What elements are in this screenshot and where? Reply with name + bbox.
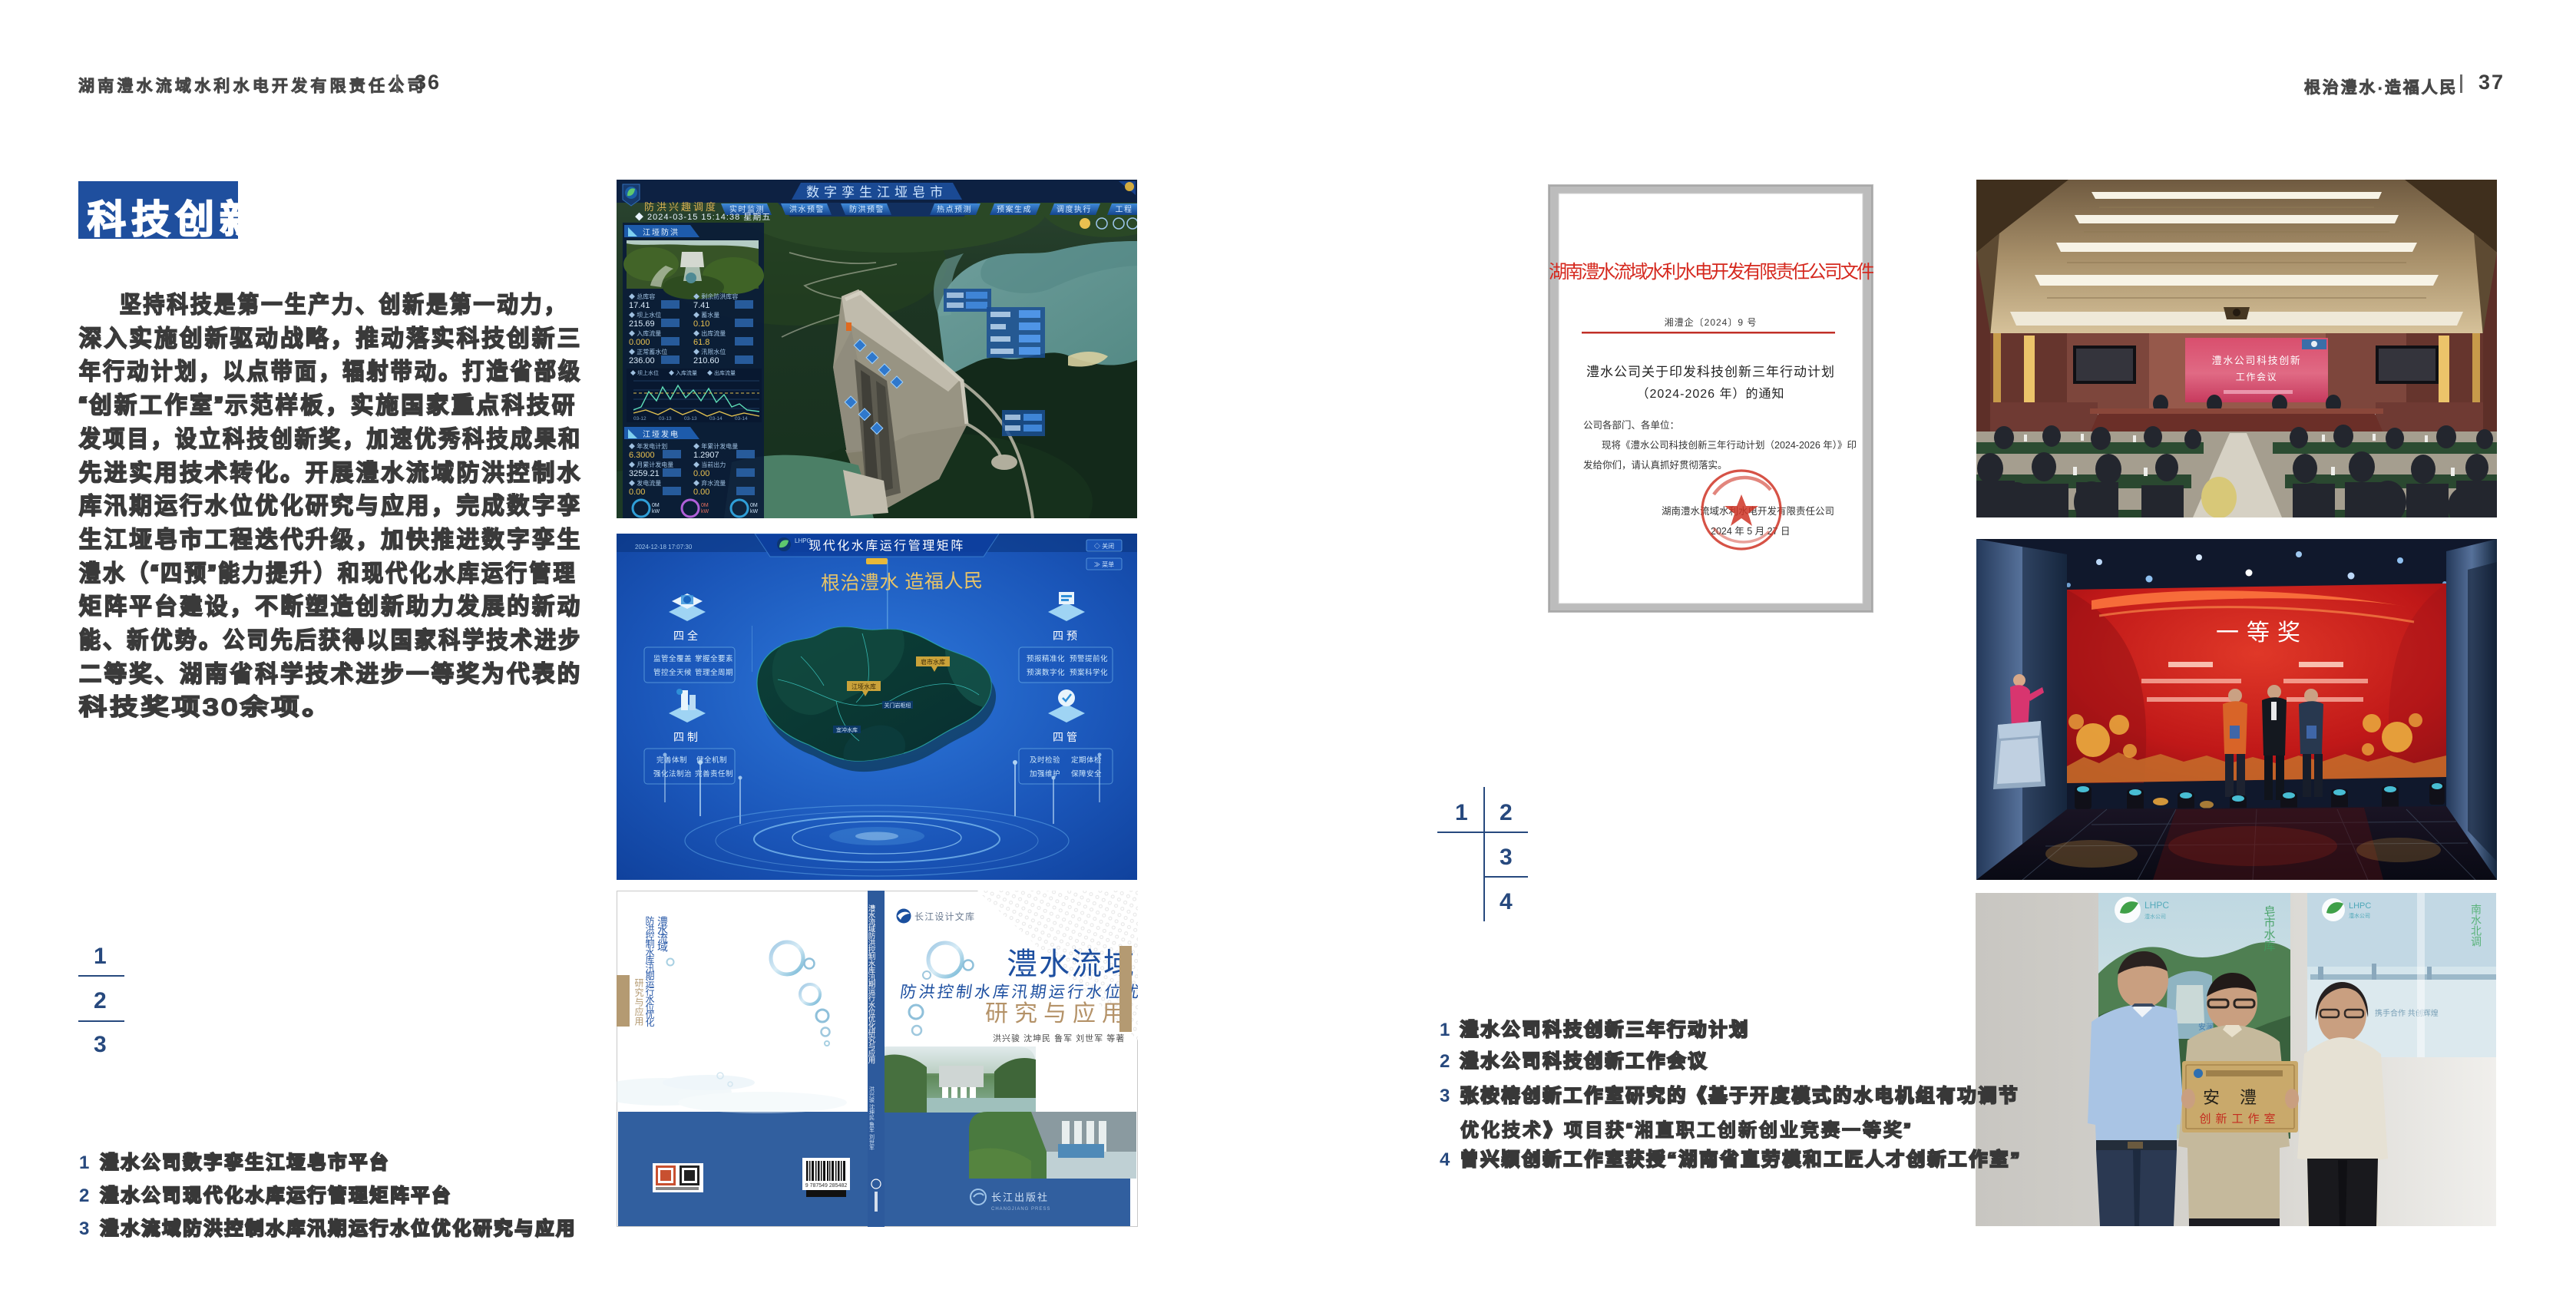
- svg-text:1.2907: 1.2907: [693, 451, 719, 460]
- svg-text:kW: kW: [652, 509, 660, 514]
- svg-text:调度执行: 调度执行: [1057, 204, 1092, 214]
- svg-text:03-13: 03-13: [684, 416, 697, 422]
- svg-text:3259.21: 3259.21: [629, 469, 660, 478]
- svg-text:加强维护: 加强维护: [1030, 769, 1060, 779]
- svg-text:保障安全: 保障安全: [1071, 769, 1102, 779]
- svg-text:工作会议: 工作会议: [2236, 372, 2277, 382]
- svg-text:防洪控制水库汛期运行水位优化: 防洪控制水库汛期运行水位优化: [899, 983, 1138, 1001]
- svg-text:掌握全要素: 掌握全要素: [695, 654, 733, 663]
- svg-text:0.000: 0.000: [629, 338, 650, 347]
- svg-text:◆ 入库流量: ◆ 入库流量: [629, 329, 661, 337]
- svg-text:LHPC: LHPC: [2349, 901, 2371, 911]
- svg-text:◆ 弃水流量: ◆ 弃水流量: [693, 479, 726, 487]
- svg-text:监管全覆盖: 监管全覆盖: [653, 654, 692, 663]
- svg-text:洪兴骏 沈坤民 鲁军 刘世军 等著: 洪兴骏 沈坤民 鲁军 刘世军 等著: [993, 1033, 1125, 1043]
- svg-text:研究与应用: 研究与应用: [985, 1001, 1131, 1027]
- svg-text:215.69: 215.69: [629, 319, 655, 329]
- svg-text:03-14: 03-14: [735, 416, 748, 422]
- svg-text:◆ 发电流量: ◆ 发电流量: [629, 479, 661, 487]
- svg-text:0.00: 0.00: [693, 488, 709, 497]
- svg-text:预案生成: 预案生成: [997, 204, 1032, 214]
- svg-text:◆ 汛限水位: ◆ 汛限水位: [693, 348, 726, 355]
- svg-text:安澧: 安澧: [2203, 1088, 2277, 1107]
- svg-text:强化法制治: 强化法制治: [653, 769, 692, 779]
- svg-text:洪水预警: 洪水预警: [789, 204, 825, 214]
- svg-text:工程: 工程: [1116, 205, 1133, 214]
- svg-text:◆ 年发电计划: ◆ 年发电计划: [629, 442, 667, 450]
- svg-text:长江设计文库: 长江设计文库: [914, 911, 975, 922]
- svg-text:现将《澧水公司科技创新三年行动计划（2024-2026 年）: 现将《澧水公司科技创新三年行动计划（2024-2026 年）》印: [1602, 439, 1857, 451]
- svg-text:四全: 四全: [673, 630, 701, 642]
- svg-text:数字孪生江垭皂市: 数字孪生江垭皂市: [806, 185, 947, 200]
- svg-text:◆ 剩余防洪库容: ◆ 剩余防洪库容: [693, 293, 738, 300]
- svg-text:17.41: 17.41: [629, 301, 650, 310]
- svg-text:0M: 0M: [701, 503, 709, 508]
- svg-text:皂市水库: 皂市水库: [921, 658, 945, 666]
- svg-text:◆ 当前出力: ◆ 当前出力: [693, 461, 726, 468]
- svg-text:预报精准化: 预报精准化: [1027, 654, 1065, 663]
- svg-text:236.00: 236.00: [629, 356, 655, 365]
- svg-text:江垭防洪: 江垭防洪: [643, 227, 680, 237]
- svg-text:2024-12-18 17:07:30: 2024-12-18 17:07:30: [635, 544, 693, 551]
- svg-text:创新工作室: 创新工作室: [2199, 1113, 2280, 1126]
- svg-text:◆ 正常蓄水位: ◆ 正常蓄水位: [629, 348, 667, 355]
- svg-text:研究与应用: 研究与应用: [633, 978, 644, 1027]
- svg-text:LHPC: LHPC: [2144, 900, 2169, 911]
- svg-text:◆ 坝上水位: ◆ 坝上水位: [630, 369, 659, 376]
- svg-text:江垭水库: 江垭水库: [852, 683, 876, 690]
- svg-text:0M: 0M: [750, 503, 758, 508]
- svg-text:南水北调: 南水北调: [2470, 904, 2482, 947]
- svg-text:澧水流域: 澧水流域: [1007, 947, 1136, 981]
- svg-text:江垭发电: 江垭发电: [643, 429, 680, 439]
- svg-text:防洪预警: 防洪预警: [849, 204, 885, 214]
- svg-text:澧水公司: 澧水公司: [2349, 912, 2370, 919]
- svg-text:洪兴骏 沈坤民 鲁军 刘世军: 洪兴骏 沈坤民 鲁军 刘世军: [869, 1086, 875, 1151]
- svg-text:公司各部门、各单位：: 公司各部门、各单位：: [1583, 419, 1679, 431]
- svg-text:9 787549 285482: 9 787549 285482: [805, 1183, 848, 1189]
- svg-text:预演数字化: 预演数字化: [1027, 668, 1065, 677]
- svg-text:◆ 蓄水量: ◆ 蓄水量: [693, 311, 719, 319]
- svg-text:kW: kW: [701, 509, 709, 514]
- svg-text:0M: 0M: [652, 503, 660, 508]
- svg-text:管理全周期: 管理全周期: [695, 668, 733, 677]
- svg-text:kW: kW: [750, 509, 759, 514]
- svg-text:根治澧水 造福人民: 根治澧水 造福人民: [821, 570, 984, 595]
- svg-text:◆ 坝上水位: ◆ 坝上水位: [629, 311, 661, 319]
- svg-text:一等奖: 一等奖: [2216, 620, 2308, 646]
- svg-text:四制: 四制: [673, 731, 701, 743]
- svg-text:发给你们，请认真抓好贯彻落实。: 发给你们，请认真抓好贯彻落实。: [1583, 459, 1728, 471]
- svg-text:澧水公司科技创新: 澧水公司科技创新: [2212, 355, 2302, 366]
- svg-text:6.3000: 6.3000: [629, 451, 655, 460]
- svg-text:关门岩枢纽: 关门岩枢纽: [885, 702, 911, 709]
- svg-text:0.00: 0.00: [693, 469, 709, 478]
- svg-text:宜冲水库: 宜冲水库: [836, 726, 858, 733]
- svg-text:≫ 菜单: ≫ 菜单: [1094, 560, 1114, 568]
- svg-text:携手合作 共创辉煌: 携手合作 共创辉煌: [2375, 1008, 2439, 1018]
- svg-text:03-12: 03-12: [633, 416, 646, 422]
- svg-text:0.00: 0.00: [629, 488, 645, 497]
- svg-text:四预: 四预: [1053, 630, 1080, 642]
- svg-text:现代化水库运行管理矩阵: 现代化水库运行管理矩阵: [809, 539, 965, 553]
- svg-text:防洪兴趣调度: 防洪兴趣调度: [644, 201, 718, 213]
- svg-text:定期体检: 定期体检: [1071, 755, 1102, 765]
- svg-text:03-14: 03-14: [709, 416, 723, 422]
- svg-text:管控全天候: 管控全天候: [653, 668, 692, 677]
- svg-text:◆ 2024-03-15 15:14:38 星期五: ◆ 2024-03-15 15:14:38 星期五: [635, 212, 771, 222]
- svg-text:完善体制: 完善体制: [656, 755, 687, 765]
- svg-text:7.41: 7.41: [693, 301, 709, 310]
- svg-text:◆ 总库容: ◆ 总库容: [629, 293, 655, 300]
- svg-text:皂市水库: 皂市水库: [2263, 905, 2276, 951]
- svg-text:澧水流域防洪控制水库汛期运行水位优化研究与应用: 澧水流域防洪控制水库汛期运行水位优化研究与应用: [867, 904, 876, 1064]
- svg-text:湖南澧水流域水利水电开发有限责任公司文件: 湖南澧水流域水利水电开发有限责任公司文件: [1549, 262, 1873, 283]
- svg-text:61.8: 61.8: [693, 338, 709, 347]
- svg-text:热点预测: 热点预测: [937, 204, 972, 214]
- svg-text:◆ 入库流量: ◆ 入库流量: [669, 369, 697, 376]
- svg-text:◆ 年累计发电量: ◆ 年累计发电量: [693, 442, 738, 450]
- svg-text:◆ 出库流量: ◆ 出库流量: [707, 369, 736, 376]
- svg-text:◇ 关闭: ◇ 关闭: [1094, 542, 1114, 550]
- svg-text:03-13: 03-13: [659, 416, 672, 422]
- svg-text:防洪控制水库汛期运行水位优化: 防洪控制水库汛期运行水位优化: [644, 915, 655, 1028]
- svg-text:及时检验: 及时检验: [1030, 755, 1060, 765]
- svg-text:湘澧企〔2024〕9 号: 湘澧企〔2024〕9 号: [1665, 316, 1758, 328]
- svg-text:预案科学化: 预案科学化: [1070, 668, 1108, 677]
- svg-text:澧水公司: 澧水公司: [2144, 913, 2166, 920]
- svg-text:210.60: 210.60: [693, 356, 719, 365]
- svg-text:澧水公司关于印发科技创新三年行动计划: 澧水公司关于印发科技创新三年行动计划: [1586, 365, 1835, 379]
- svg-text:澧水流域: 澧水流域: [656, 916, 669, 952]
- svg-text:◆ 出库流量: ◆ 出库流量: [693, 329, 726, 337]
- svg-text:0.10: 0.10: [693, 319, 709, 329]
- svg-text:预警提前化: 预警提前化: [1070, 654, 1108, 663]
- svg-text:四管: 四管: [1053, 731, 1080, 743]
- svg-text:长江出版社: 长江出版社: [991, 1192, 1049, 1203]
- svg-text:（2024-2026 年）的通知: （2024-2026 年）的通知: [1637, 387, 1785, 401]
- svg-text:◆ 月累计发电量: ◆ 月累计发电量: [629, 461, 673, 468]
- svg-text:CHANGJIANG PRESS: CHANGJIANG PRESS: [991, 1207, 1050, 1212]
